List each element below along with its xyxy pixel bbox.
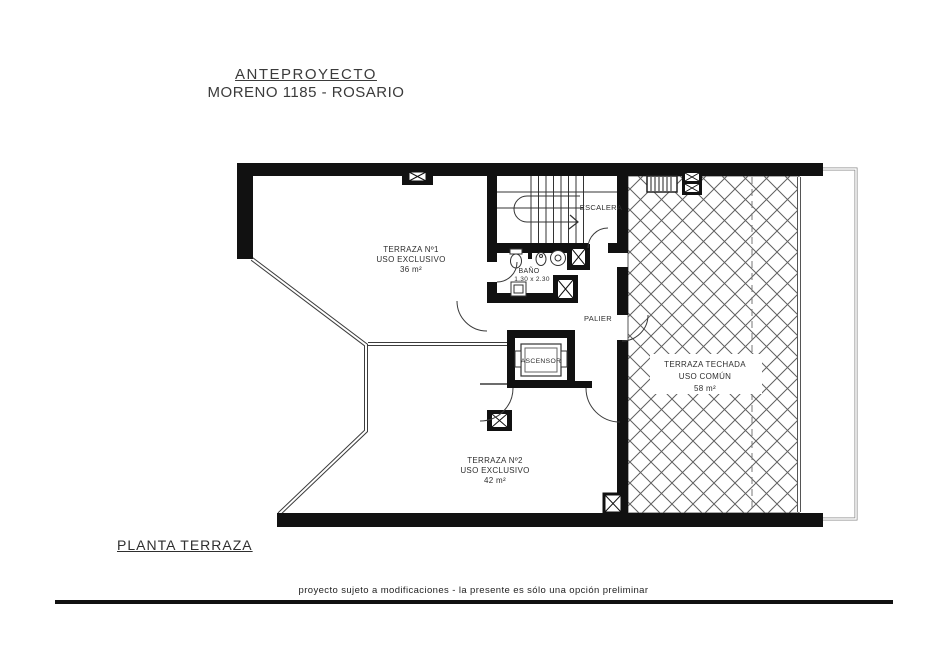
terraza-techada-use: USO COMÚN [679,372,731,381]
bidet-tap [540,255,543,258]
terraza1-use: USO EXCLUSIVO [376,255,445,264]
bano-dimension: 1.30 x 2.30 [514,276,550,283]
palier-label: PALIER [584,314,612,323]
bottom-rule [55,600,893,604]
toilet [511,254,522,268]
palier-shaft [553,275,578,303]
terraza2-east-door-arc [586,388,620,422]
stair-west-wall [487,176,497,253]
stair-direction-path [514,196,580,222]
bano-label: BAÑO [518,266,539,275]
disclaimer-text: proyecto sujeto a modificaciones - la pr… [0,585,947,596]
sink-drain [555,255,561,261]
bottom-wall [277,513,823,527]
floor-plan-drawing: TERRAZA Nº1 USO EXCLUSIVO 36 m² TERRAZA … [0,0,947,670]
palier-west-door-arc [457,301,487,331]
ascensor-label: ASCENSOR [521,358,562,365]
left-wall [237,163,253,259]
terraza2-shaft [487,410,512,431]
terraza2-use: USO EXCLUSIVO [460,466,529,475]
stair-door-arc [588,228,608,248]
terraza-techada-area [628,176,799,513]
terraza1-area: 36 m² [400,265,422,274]
terraza-techada-name: TERRAZA TECHADA [664,360,746,369]
escalera-label: ESCALERA [580,203,622,212]
parapet-railing [252,259,511,514]
shower-drain [514,285,523,293]
terraza-techada-area: 58 m² [694,384,716,393]
elevator-door-right [561,351,567,367]
top-wall-shaft [402,168,433,185]
open-terrace-edge [799,169,856,519]
terraza2-area: 42 m² [484,476,506,485]
plan-title: PLANTA TERRAZA [117,537,258,553]
double-shaft [682,170,702,195]
terraza1-name: TERRAZA Nº1 [383,245,439,254]
bath-west-wall [487,253,497,262]
palier-south-wall [575,381,592,388]
top-wall [237,163,823,176]
bottom-right-shaft [604,494,622,513]
terraza2-name: TERRAZA Nº2 [467,456,523,465]
toilet-tank [510,249,522,254]
bath-east-shaft [567,244,590,270]
floor-plan-page: { "header": { "title": "ANTEPROYECTO", "… [0,0,947,670]
vent-grille [647,176,677,192]
